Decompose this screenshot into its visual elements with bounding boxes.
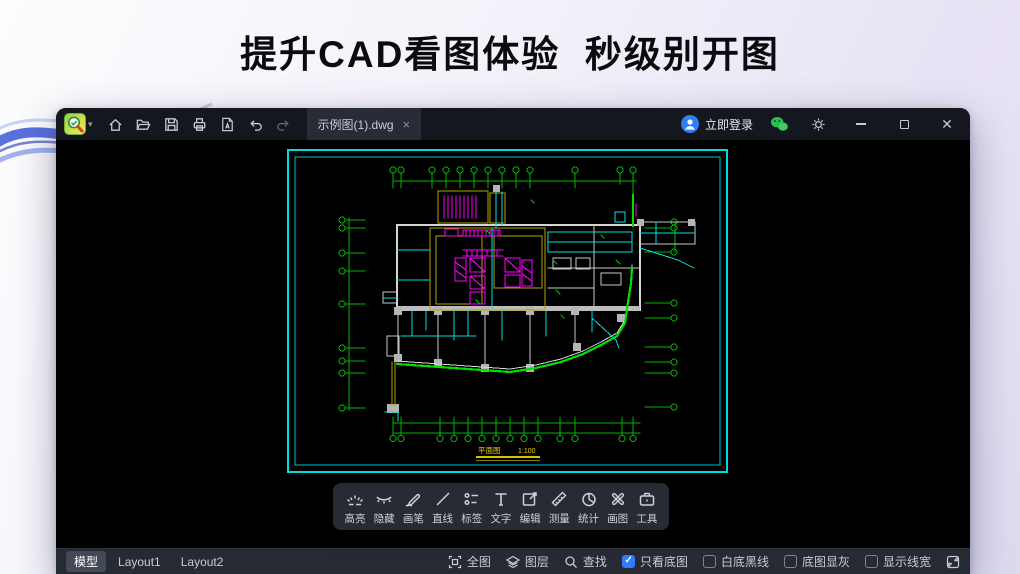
tool-edit[interactable]: 编辑 [518, 489, 542, 526]
home-icon [107, 116, 124, 133]
layout-tab-layout2[interactable]: Layout2 [173, 553, 232, 571]
fullscreen-button[interactable] [946, 555, 960, 569]
stats-pie-icon [579, 489, 599, 509]
tab-close-icon[interactable]: × [403, 118, 411, 131]
pen-icon [403, 489, 423, 509]
layers-button[interactable]: 图层 [506, 553, 549, 570]
toolbox-icon [637, 489, 657, 509]
checkbox-icon [703, 555, 716, 568]
measure-icon [549, 489, 569, 509]
tool-label: 隐藏 [374, 511, 395, 526]
app-window: ▾ [56, 108, 970, 574]
tool-label: 统计 [578, 511, 599, 526]
highlight-icon [345, 489, 365, 509]
open-folder-icon [135, 116, 152, 133]
close-button[interactable]: ✕ [934, 112, 960, 136]
toggle-label: 显示线宽 [883, 553, 931, 570]
layers-label: 图层 [525, 553, 549, 570]
save-icon [163, 116, 180, 133]
toggle-base-drawing-only[interactable]: 只看底图 [622, 553, 688, 570]
toggle-label: 只看底图 [640, 553, 688, 570]
tab-example-dwg[interactable]: 示例图(1).dwg × [307, 108, 422, 140]
edit-icon [520, 489, 540, 509]
tool-draw[interactable]: 画图 [606, 489, 630, 526]
checkbox-icon [784, 555, 797, 568]
layout-tab-layout1[interactable]: Layout1 [110, 553, 169, 571]
fit-view-button[interactable]: 全图 [448, 553, 491, 570]
text-icon [491, 489, 511, 509]
tool-label: 高亮 [345, 511, 366, 526]
draw-cross-icon [608, 489, 628, 509]
print-icon [191, 116, 208, 133]
tool-label: 编辑 [520, 511, 541, 526]
toggle-gray-base-drawing[interactable]: 底图显灰 [784, 553, 850, 570]
tool-highlight[interactable]: 高亮 [343, 489, 367, 526]
toggle-white-bg-black-lines[interactable]: 白底黑线 [703, 553, 769, 570]
export-pdf-button[interactable] [215, 112, 241, 136]
home-button[interactable] [103, 112, 129, 136]
drawing-caption: 平面图 [478, 446, 501, 455]
drawing-scale: 1:100 [518, 448, 536, 455]
maximize-button[interactable] [891, 112, 917, 136]
pdf-export-icon [219, 116, 236, 133]
fit-view-label: 全图 [467, 553, 491, 570]
tool-label: 工具 [636, 511, 657, 526]
checkbox-icon [865, 555, 878, 568]
search-icon [564, 555, 578, 569]
tool-hide[interactable]: 隐藏 [372, 489, 396, 526]
layers-icon [506, 555, 520, 569]
wechat-button[interactable] [766, 112, 792, 136]
minimize-button[interactable] [848, 112, 874, 136]
checkbox-checked-icon [622, 555, 635, 568]
tool-label: 直线 [432, 511, 453, 526]
fit-view-icon [448, 555, 462, 569]
save-button[interactable] [159, 112, 185, 136]
tool-label: 测量 [549, 511, 570, 526]
titlebar: ▾ [56, 108, 970, 140]
statusbar: 模型 Layout1 Layout2 全图 图层 [56, 548, 970, 574]
close-icon: ✕ [941, 117, 953, 131]
find-label: 查找 [583, 553, 607, 570]
toggle-show-lineweight[interactable]: 显示线宽 [865, 553, 931, 570]
page-title: 提升CAD看图体验 秒级别开图 [0, 24, 1020, 78]
settings-button[interactable] [805, 112, 831, 136]
toggle-label: 白底黑线 [721, 553, 769, 570]
floating-toolbar: 高亮 隐藏 画笔 直线 [333, 483, 669, 530]
tool-tag[interactable]: 标签 [460, 489, 484, 526]
tool-label: 标签 [461, 511, 482, 526]
tool-measure[interactable]: 测量 [547, 489, 571, 526]
app-logo-menu[interactable]: ▾ [64, 113, 93, 135]
redo-button[interactable] [271, 112, 297, 136]
login-button[interactable]: 立即登录 [681, 115, 753, 133]
redo-icon [275, 116, 292, 133]
toggle-label: 底图显灰 [802, 553, 850, 570]
login-label: 立即登录 [705, 116, 753, 133]
undo-icon [247, 116, 264, 133]
maximize-icon [900, 120, 909, 129]
tool-label: 画图 [607, 511, 628, 526]
find-button[interactable]: 查找 [564, 553, 607, 570]
line-icon [433, 489, 453, 509]
tool-stats[interactable]: 统计 [577, 489, 601, 526]
print-button[interactable] [187, 112, 213, 136]
drawing-canvas[interactable]: 平面图 1:100 高亮 隐藏 [56, 140, 970, 548]
avatar-icon [681, 115, 699, 133]
tool-line[interactable]: 直线 [431, 489, 455, 526]
tool-toolbox[interactable]: 工具 [635, 489, 659, 526]
fullscreen-expand-icon [946, 555, 960, 569]
tool-text[interactable]: 文字 [489, 489, 513, 526]
chevron-down-icon: ▾ [88, 119, 93, 130]
undo-button[interactable] [243, 112, 269, 136]
tag-list-icon [462, 489, 482, 509]
tool-pen[interactable]: 画笔 [401, 489, 425, 526]
hide-eye-icon [374, 489, 394, 509]
open-file-button[interactable] [131, 112, 157, 136]
wechat-icon [770, 116, 789, 132]
gear-icon [810, 116, 827, 133]
tool-label: 画笔 [403, 511, 424, 526]
tool-label: 文字 [490, 511, 511, 526]
minimize-icon [856, 123, 866, 125]
tab-label: 示例图(1).dwg [318, 116, 394, 133]
app-logo-icon [64, 113, 86, 135]
layout-tab-model[interactable]: 模型 [66, 551, 106, 572]
